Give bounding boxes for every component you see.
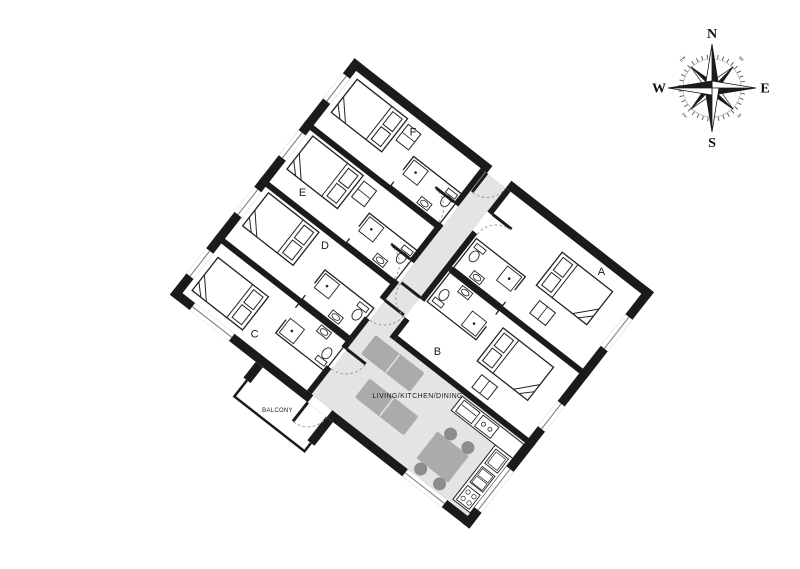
- room-d-bed: [243, 193, 319, 265]
- room-c-label: C: [251, 328, 259, 340]
- compass-north-label: N: [707, 27, 717, 42]
- room-d-label: D: [321, 240, 329, 252]
- floor-plan: A B C D E F LIVING/KITCHEN/DINING BALCON…: [137, 51, 661, 568]
- compass-east-label: E: [760, 82, 769, 97]
- room-b-label: B: [434, 346, 441, 358]
- room-f-label: F: [410, 127, 417, 139]
- compass-rose: N E S W nw ne sw se: [646, 22, 778, 154]
- room-a-label: A: [598, 266, 606, 278]
- compass-northeast-label: ne: [737, 55, 745, 63]
- balcony-door: [292, 401, 309, 422]
- living-area-label: LIVING/KITCHEN/DINING: [372, 393, 462, 400]
- compass-west-label: W: [652, 82, 666, 97]
- floorplan-page: A B C D E F LIVING/KITCHEN/DINING BALCON…: [0, 0, 800, 565]
- compass-southeast-label: se: [736, 111, 744, 119]
- room-f-bed: [331, 79, 407, 151]
- compass-northwest-label: nw: [678, 54, 687, 63]
- compass-southwest-label: sw: [680, 111, 689, 120]
- room-e-label: E: [299, 187, 306, 199]
- compass-south-label: S: [708, 136, 716, 151]
- balcony-label: BALCONY: [262, 408, 293, 414]
